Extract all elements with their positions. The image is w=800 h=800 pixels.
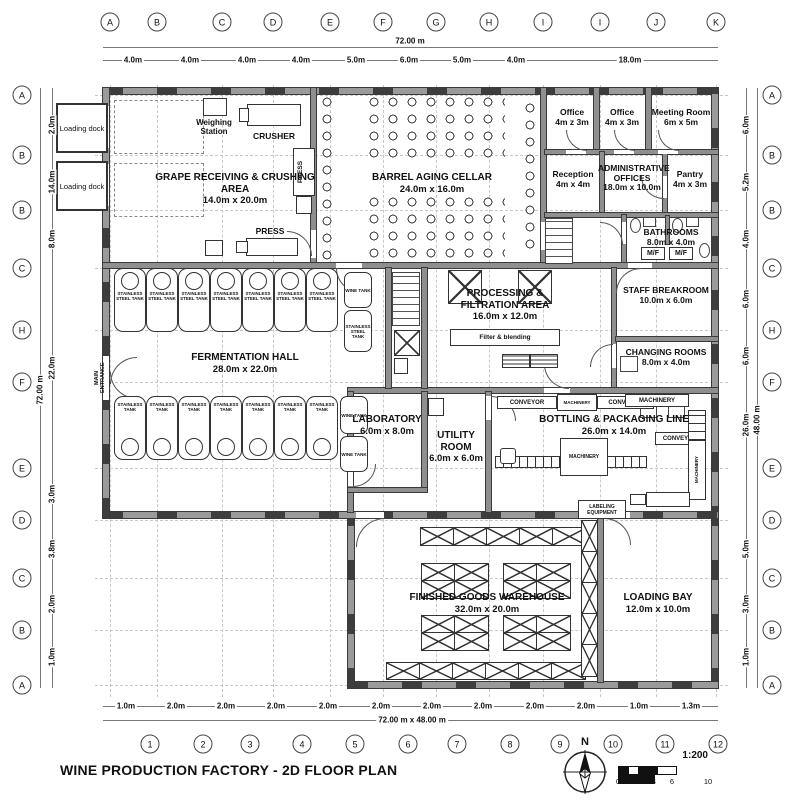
fermentation-tank: STAINLESS TANK — [210, 396, 242, 460]
grid-bubble-right: E — [763, 459, 782, 478]
sink — [643, 217, 656, 227]
scale-tick: 1 — [625, 777, 629, 786]
wall-warehouse-loading — [598, 516, 603, 682]
room-label-pantry: Pantry4m x 3m — [668, 170, 712, 189]
grid-bubble-top: G — [427, 13, 446, 32]
grid-bubble-top: H — [480, 13, 499, 32]
grid-bubble-left: E — [13, 459, 32, 478]
dim-label: 72.00 m — [393, 37, 426, 46]
dim-line-bottom-segments — [103, 706, 718, 707]
scale-ticks: 0 1 2 4 6 10 — [618, 777, 710, 787]
storage-rack — [485, 662, 520, 680]
dim-label: 5.0m — [345, 56, 367, 65]
dim-line-top-overall — [103, 47, 718, 48]
floor-drain — [205, 240, 223, 256]
grid-bubble-right: B — [763, 146, 782, 165]
weighing-station — [203, 98, 227, 116]
elevator — [394, 330, 420, 356]
scale-tick: 4 — [652, 777, 656, 786]
barrel-rows — [365, 94, 505, 164]
storage-rack — [503, 632, 538, 651]
room-label-office1: Office4m z 3m — [550, 108, 594, 127]
dim-label: 2.0m — [165, 702, 187, 711]
bottling-machine — [646, 492, 690, 507]
machinery-box: MACHINERY — [557, 394, 597, 411]
door-arc — [590, 344, 613, 367]
dim-label: 72.00 m — [36, 374, 45, 405]
fermentation-tank: STAINLESS STEEL TANK — [114, 268, 146, 332]
room-label-warehouse: FINISHED GOODS WAREHOUSE32.0m x 20.0m — [392, 592, 582, 615]
fermentation-tank: STAINLESS STEEL TANK — [210, 268, 242, 332]
case-packer — [500, 448, 516, 464]
dim-label: 2.0m — [48, 594, 57, 614]
crusher-label: CRUSHER — [246, 131, 302, 141]
crusher-machine — [247, 104, 301, 126]
press-label: PRESS — [248, 226, 292, 236]
grid-bubble-right: F — [763, 373, 782, 392]
loading-dock: Loading dock — [56, 103, 108, 153]
dim-label: 72.00 m x 48.00 m — [376, 716, 448, 725]
storage-rack-vertical — [581, 551, 598, 584]
dim-line-right-overall — [757, 88, 758, 688]
wall-exterior-bottom — [348, 682, 718, 688]
grid-bubble-right: H — [763, 321, 782, 340]
loading-dock-label: Loading dock — [60, 182, 105, 191]
grid-line-vertical — [110, 85, 111, 697]
grid-bubble-top: C — [213, 13, 232, 32]
storage-rack — [519, 527, 554, 546]
dim-label: 6.0m — [742, 115, 751, 135]
dim-label: 2.0m — [215, 702, 237, 711]
staircase — [392, 272, 420, 326]
scale-bar — [618, 766, 710, 775]
conveyor-box: CONVEYOR — [497, 396, 557, 409]
staircase — [545, 218, 573, 264]
wine-tank: WINE TANK — [340, 436, 368, 472]
grid-bubble-right: C — [763, 569, 782, 588]
stainless-tank-small: STAINLESS STEEL TANK — [344, 310, 372, 352]
bottling-machine — [630, 494, 646, 505]
door-arc — [604, 518, 631, 545]
fermentation-tank: STAINLESS STEEL TANK — [178, 268, 210, 332]
grid-bubble-right: A — [763, 676, 782, 695]
room-label-fermentation: FERMENTATION HALL28.0m x 22.0m — [150, 352, 340, 375]
fermentation-tank: STAINLESS TANK — [178, 396, 210, 460]
fermentation-tank: STAINLESS TANK — [242, 396, 274, 460]
crusher-feed — [239, 108, 249, 122]
grid-bubble-bottom: 8 — [501, 735, 520, 754]
wall-warehouse-left — [348, 512, 354, 688]
scale-segment — [618, 766, 629, 775]
grid-bubble-left: H — [13, 321, 32, 340]
wall-lab-bottom — [348, 488, 427, 492]
storage-rack — [454, 632, 489, 651]
door-arc — [566, 130, 587, 151]
scale-tick: 2 — [634, 777, 638, 786]
north-arrow-icon — [561, 748, 609, 796]
grid-bubble-top: I — [534, 13, 553, 32]
dim-label: 2.0m — [48, 115, 57, 135]
room-label-utility: UTILITY ROOM6.0m x 6.0m — [424, 430, 488, 464]
floor-plan-canvas: Loading dock Loading dock Weighing Stati… — [0, 0, 800, 800]
machinery-vertical: MACHINERY — [688, 440, 706, 500]
storage-rack — [453, 527, 488, 546]
grid-bubble-top: K — [707, 13, 726, 32]
tank-hatch-icon — [121, 272, 139, 290]
utility-equipment — [428, 398, 444, 416]
tank-hatch-icon — [185, 438, 203, 456]
dim-label: 8.0m — [48, 229, 57, 249]
grid-bubble-bottom: 3 — [241, 735, 260, 754]
grid-bubble-bottom: 5 — [346, 735, 365, 754]
barrel-column — [318, 94, 338, 262]
room-label-office2: Office4m x 3m — [600, 108, 644, 127]
grid-bubble-left: A — [13, 676, 32, 695]
tank-hatch-icon — [121, 438, 139, 456]
storage-rack-vertical — [581, 644, 598, 677]
room-label-grape: GRAPE RECEIVING & CRUSHING AREA14.0m x 2… — [155, 172, 315, 206]
dim-label: 4.0m — [122, 56, 144, 65]
dim-label: 4.0m — [505, 56, 527, 65]
grid-bubble-left: F — [13, 373, 32, 392]
grid-bubble-bottom: 6 — [399, 735, 418, 754]
room-label-processing: PROCESSING & FILTRATION AREA16.0m x 12.0… — [440, 288, 570, 322]
scale-tick: 10 — [704, 777, 712, 786]
grid-line-horizontal — [95, 382, 728, 383]
tank-hatch-icon — [249, 438, 267, 456]
storage-rack — [536, 632, 571, 651]
north-label: N — [581, 736, 589, 748]
scale-ratio: 1:200 — [682, 750, 708, 761]
storage-rack — [420, 527, 455, 546]
grid-bubble-bottom: 1 — [141, 735, 160, 754]
dim-label: 4.0m — [290, 56, 312, 65]
room-label-bottling: BOTTLING & PACKAGING LINE26.0m x 14.0m — [528, 414, 700, 437]
grid-bubble-bottom: 11 — [656, 735, 675, 754]
dim-label: 2.0m — [524, 702, 546, 711]
door-arc — [600, 222, 623, 245]
tank-hatch-icon — [153, 272, 171, 290]
grid-bubble-top: D — [264, 13, 283, 32]
grid-bubble-left: B — [13, 146, 32, 165]
dim-label: 3.8m — [48, 539, 57, 559]
door-arc — [110, 372, 137, 399]
grid-line-horizontal — [95, 468, 728, 469]
mf-label: M/F — [669, 247, 693, 260]
grid-bubble-bottom: 4 — [293, 735, 312, 754]
room-label-admin: ADMINISTRATIVE OFFICES18.0m x 10.0m — [598, 164, 666, 193]
tank-hatch-icon — [249, 272, 267, 290]
storage-rack — [518, 662, 553, 680]
tank-hatch-icon — [281, 438, 299, 456]
dim-label: 6.0m — [398, 56, 420, 65]
dim-label: 5.2m — [742, 172, 751, 192]
grid-bubble-left: C — [13, 569, 32, 588]
grid-bubble-bottom: 12 — [709, 735, 728, 754]
tank-hatch-icon — [217, 272, 235, 290]
dim-label: 26.0m — [742, 413, 751, 438]
scale-segment — [658, 766, 677, 775]
grid-line-horizontal — [95, 520, 728, 521]
grid-bubble-right: C — [763, 259, 782, 278]
shaft-closet — [394, 358, 408, 374]
dim-label: 3.0m — [742, 594, 751, 614]
barrel-column — [521, 100, 541, 252]
machinery-box: MACHINERY — [625, 394, 689, 407]
mf-label: M/F — [641, 247, 665, 260]
storage-rack-vertical — [581, 582, 598, 615]
process-equipment — [530, 354, 558, 368]
dim-label: 1.0m — [48, 647, 57, 667]
dim-label: 2.0m — [317, 702, 339, 711]
sink — [686, 217, 699, 227]
tank-hatch-icon — [185, 272, 203, 290]
dim-label: 2.0m — [421, 702, 443, 711]
scale-tick: 0 — [616, 777, 620, 786]
room-label-reception: Reception4m x 4m — [548, 170, 598, 189]
dim-label: 6.0m — [742, 346, 751, 366]
dim-label: 1.0m — [115, 702, 137, 711]
press-machine-end — [236, 241, 248, 253]
fermentation-tank: STAINLESS STEEL TANK — [242, 268, 274, 332]
filter-blending-box: Filter & blending — [450, 329, 560, 346]
dim-label: 22.0m — [48, 356, 57, 381]
dim-label: 6.0m — [742, 289, 751, 309]
dim-label: 48.00 m — [753, 404, 762, 435]
weighing-station-label: Weighing Station — [186, 118, 242, 136]
machinery-center: MACHINERY — [560, 438, 608, 476]
door-arc — [658, 130, 679, 151]
wall-stair-left — [386, 268, 391, 388]
dim-label: 18.0m — [617, 56, 644, 65]
dim-label: 5.0m — [451, 56, 473, 65]
wine-tank: WINE TANK — [344, 272, 372, 308]
room-label-breakroom: STAFF BREAKROOM10.0m x 6.0m — [620, 286, 712, 305]
loading-dock-label: Loading dock — [60, 124, 105, 133]
storage-rack-vertical — [581, 520, 598, 553]
storage-rack-vertical — [581, 613, 598, 646]
tank-hatch-icon — [313, 438, 331, 456]
room-label-cellar: BARREL AGING CELLAR24.0m x 16.0m — [352, 172, 512, 195]
grid-bubble-bottom: 2 — [194, 735, 213, 754]
fermentation-tank: STAINLESS TANK — [274, 396, 306, 460]
dim-label: 2.0m — [575, 702, 597, 711]
fermentation-tank: STAINLESS STEEL TANK — [274, 268, 306, 332]
door-opening — [356, 512, 384, 518]
page-title: WINE PRODUCTION FACTORY - 2D FLOOR PLAN — [60, 762, 397, 778]
fermentation-tank: STAINLESS TANK — [306, 396, 338, 460]
wall-bottling-top — [348, 388, 718, 393]
grid-bubble-bottom: 7 — [448, 735, 467, 754]
grid-bubble-left: C — [13, 259, 32, 278]
tank-hatch-icon — [281, 272, 299, 290]
process-equipment — [502, 354, 530, 368]
main-entrance-label: MAIN ENTRANCE — [94, 356, 106, 400]
wall-breakroom-left — [612, 268, 616, 390]
dim-label: 5.0m — [742, 539, 751, 559]
labeling-equipment-box: LABELING EQUIPMENT — [578, 500, 626, 519]
fermentation-tank: STAINLESS TANK — [114, 396, 146, 460]
dim-label: 4.0m — [179, 56, 201, 65]
storage-rack — [419, 662, 454, 680]
dim-label: 2.0m — [265, 702, 287, 711]
tank-hatch-icon — [217, 438, 235, 456]
dim-label: 2.0m — [472, 702, 494, 711]
dim-label: 3.0m — [48, 484, 57, 504]
storage-rack — [421, 632, 456, 651]
grid-bubble-top: B — [148, 13, 167, 32]
grid-line-horizontal — [95, 578, 728, 579]
fermentation-tank: STAINLESS STEEL TANK — [306, 268, 338, 332]
grid-bubble-top: J — [647, 13, 666, 32]
storage-rack — [452, 662, 487, 680]
press-machine — [246, 238, 298, 256]
grid-line-horizontal — [95, 630, 728, 631]
scale-segment — [639, 766, 658, 775]
room-label-bathrooms: BATHROOMS8.0m x 4.0m — [628, 228, 714, 247]
grid-bubble-right: D — [763, 511, 782, 530]
fermentation-tank: STAINLESS STEEL TANK — [146, 268, 178, 332]
room-label-laboratory: LABORATORY6.0m x 8.0m — [352, 414, 422, 437]
door-arc — [356, 518, 385, 547]
dim-label: 14.0m — [48, 170, 57, 195]
room-label-loading-bay: LOADING BAY12.0m x 10.0m — [608, 592, 708, 615]
dim-label: 4.0m — [742, 229, 751, 249]
grid-bubble-left: B — [13, 621, 32, 640]
dim-label: 4.0m — [236, 56, 258, 65]
fermentation-tank: STAINLESS TANK — [146, 396, 178, 460]
wall-breakroom-bottom — [616, 337, 718, 341]
grid-bubble-top: I — [591, 13, 610, 32]
door-arc — [614, 130, 635, 151]
scale-tick: 6 — [670, 777, 674, 786]
grid-bubble-right: B — [763, 621, 782, 640]
grid-bubble-top: E — [321, 13, 340, 32]
barrel-rows — [365, 194, 505, 262]
room-label-meeting: Meeting Room6m x 5m — [650, 108, 712, 127]
room-label-changing: CHANGING ROOMS8.0m x 4.0m — [620, 348, 712, 367]
wall-stair-right — [422, 268, 427, 388]
dim-label: 2.0m — [370, 702, 392, 711]
grid-bubble-left: B — [13, 201, 32, 220]
storage-rack — [486, 527, 521, 546]
grid-bubble-left: A — [13, 86, 32, 105]
grid-bubble-left: D — [13, 511, 32, 530]
dim-label: 1.3m — [680, 702, 702, 711]
wall-office-divider-1 — [594, 88, 599, 152]
scale-segment — [629, 766, 639, 775]
dim-label: 1.0m — [628, 702, 650, 711]
loading-dock: Loading dock — [56, 161, 108, 211]
dim-label: 1.0m — [742, 647, 751, 667]
tank-hatch-icon — [313, 272, 331, 290]
grid-bubble-top: A — [101, 13, 120, 32]
storage-rack — [386, 662, 421, 680]
grid-bubble-right: A — [763, 86, 782, 105]
grid-bubble-top: F — [374, 13, 393, 32]
tank-hatch-icon — [153, 438, 171, 456]
grid-bubble-right: B — [763, 201, 782, 220]
